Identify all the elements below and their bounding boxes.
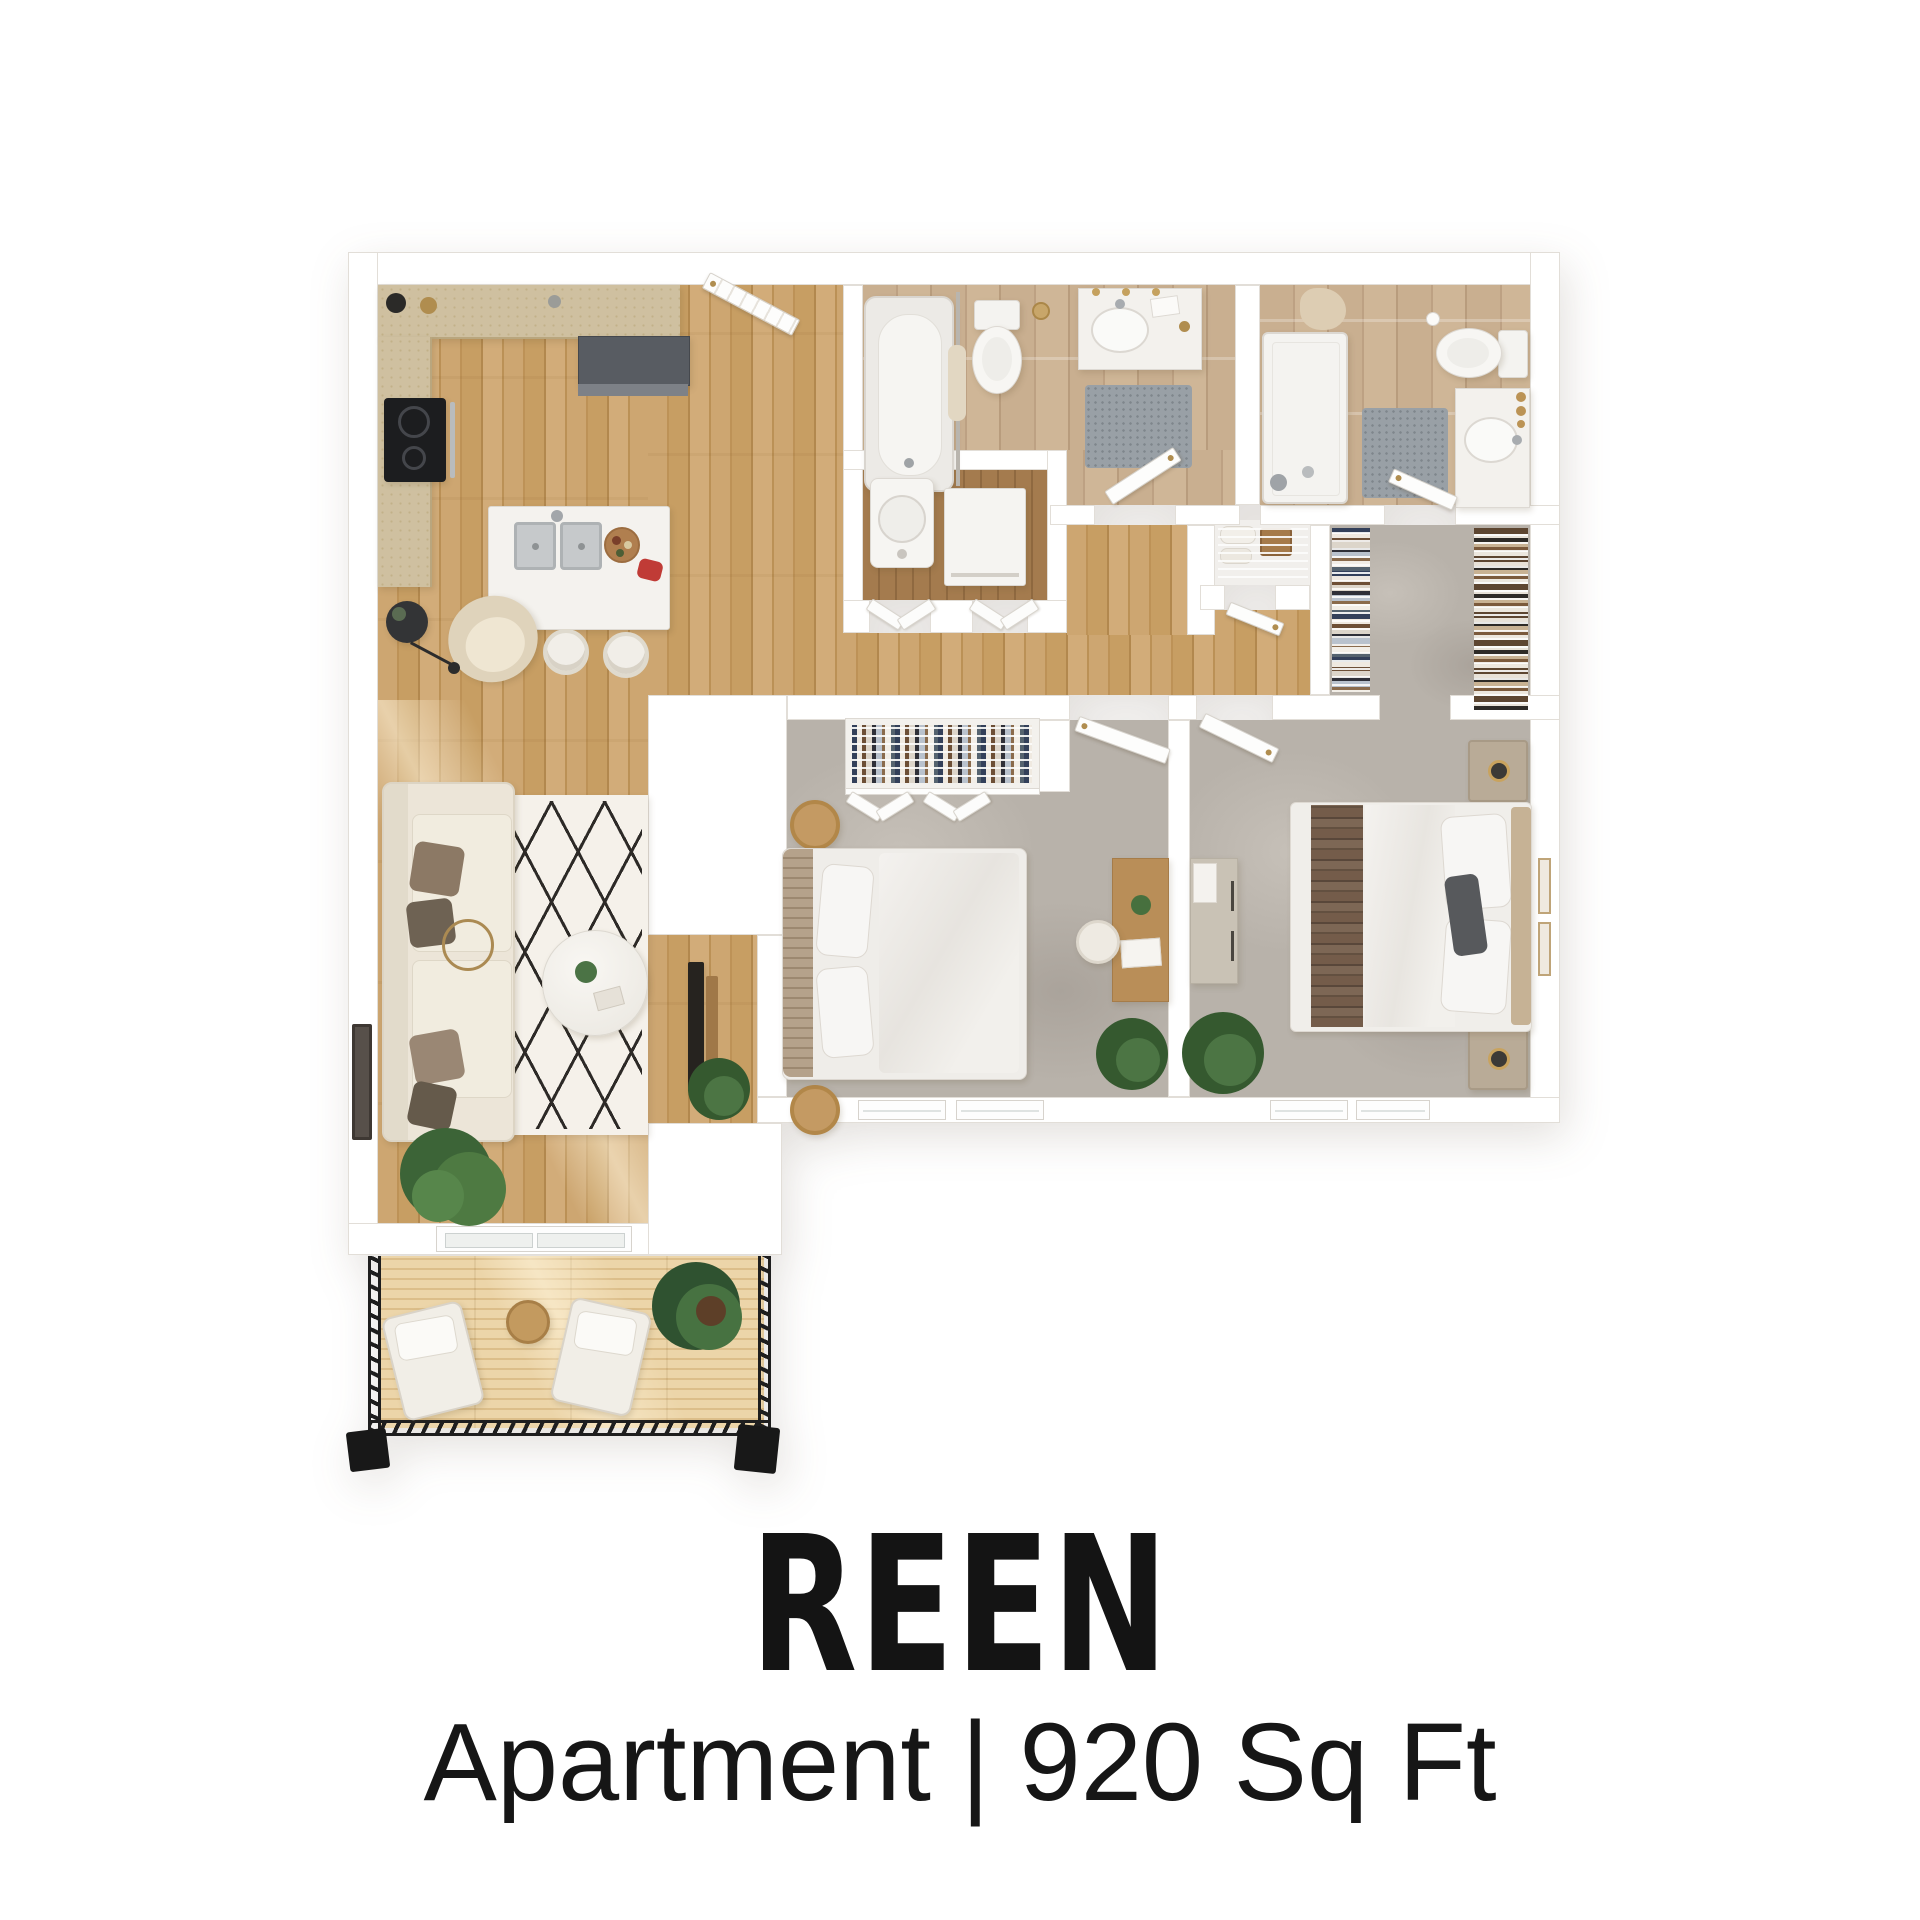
wall-right <box>1530 252 1560 1123</box>
walkin-rack-left-wire <box>1332 528 1370 692</box>
bathtub <box>864 296 954 492</box>
wall-bedrooms-top-a <box>787 695 1070 720</box>
island-sink-left <box>514 522 556 570</box>
wall-walkin-left <box>1310 525 1330 695</box>
master-plant-2 <box>1204 1034 1256 1086</box>
laundry-bifold-1a <box>866 598 906 630</box>
bed-1-pillow-2 <box>815 965 875 1059</box>
range-hood <box>578 336 690 386</box>
bedroom1-window-1 <box>858 1100 946 1120</box>
subtitle-separator: | <box>961 1691 990 1835</box>
wall-linen-left <box>1187 525 1215 635</box>
plan-type: Apartment <box>424 1701 931 1824</box>
wall-linen-bottom-b <box>1275 585 1310 610</box>
sofa-pillow-1 <box>408 840 465 897</box>
bar-stool-3 <box>603 632 649 678</box>
vanity-light-3 <box>1152 288 1160 296</box>
sofa-back <box>384 784 408 1140</box>
desk-plant <box>1131 895 1151 915</box>
bed1-nightstand-bottom <box>790 1085 840 1135</box>
master-lamp-bottom <box>1488 1048 1510 1070</box>
nook-plant-2 <box>704 1076 744 1116</box>
gold-bin <box>1032 302 1050 320</box>
coffee-table <box>542 930 648 1036</box>
vanity-1 <box>1078 288 1202 370</box>
toilet-1-seat <box>982 337 1012 381</box>
wall-step-block <box>648 1123 782 1255</box>
table-plant <box>575 961 597 983</box>
plan-subtitle: Apartment|920 Sq Ft <box>0 1694 1920 1832</box>
walkin-rack-right-wire <box>1474 528 1528 710</box>
balcony-railing-front <box>368 1420 771 1436</box>
bathtub-faucet <box>904 458 914 468</box>
plan-title: REEN <box>250 1512 1671 1700</box>
side-table-plant <box>392 607 406 621</box>
wall-linen-bottom-a <box>1200 585 1225 610</box>
soap-dish <box>1179 321 1190 332</box>
washer-lid <box>878 495 926 543</box>
dresser-handle-2 <box>1231 931 1234 961</box>
dresser-tray <box>1193 863 1217 903</box>
wall-bath-divider <box>1235 285 1260 505</box>
wall-bath1-bottom-a <box>1050 505 1095 525</box>
wall-laundry-bottom-b <box>930 600 973 633</box>
dryer-cabinet <box>944 488 1026 586</box>
gold-jar-1 <box>1516 392 1526 402</box>
burner-1 <box>398 406 430 438</box>
master-lamp-top <box>1488 760 1510 782</box>
bedroom1-closet <box>845 718 1040 792</box>
master-bed-throw <box>1311 805 1363 1027</box>
sliding-panel-2 <box>537 1233 625 1248</box>
wall-art <box>352 1024 372 1140</box>
walkin-rack-left <box>1332 528 1370 692</box>
gold-jar-2 <box>1516 406 1526 416</box>
master-window-2 <box>1356 1100 1430 1120</box>
burner-2 <box>402 446 426 470</box>
master-art-2 <box>1538 922 1551 976</box>
food-item-1 <box>612 536 621 545</box>
balcony-railing-left <box>368 1256 381 1432</box>
toilet-paper-holder <box>1426 312 1440 326</box>
lounge-chair-2-pillow <box>573 1310 638 1357</box>
shower-drain <box>1302 466 1314 478</box>
balcony-side-table <box>506 1300 550 1344</box>
master-nightstand-bottom <box>1468 1028 1528 1090</box>
bed1-nightstand-top <box>790 800 840 850</box>
living-tree-3 <box>412 1170 464 1222</box>
laundry-bifold-2a <box>969 598 1009 630</box>
bath1-towel <box>948 345 966 421</box>
island-faucet <box>551 510 563 522</box>
balcony-plant-core <box>696 1296 726 1326</box>
balcony-sliding-door <box>436 1226 632 1252</box>
bed-1 <box>782 848 1027 1080</box>
toilet-2-bowl <box>1436 328 1502 378</box>
wall-bath2-bottom-b <box>1455 505 1560 525</box>
desk-pad <box>1120 938 1162 969</box>
sink-drain-left <box>532 543 539 550</box>
wall-clock <box>442 919 494 971</box>
bar-stool-2 <box>543 629 589 675</box>
master-headboard <box>1511 807 1531 1025</box>
gold-jar-3 <box>1517 420 1525 428</box>
toilet-2-seat <box>1447 338 1489 368</box>
shower-head <box>1270 474 1287 491</box>
master-dresser <box>1190 858 1238 984</box>
bedroom1-closet-wire <box>852 725 1032 783</box>
wall-living-bedroom1-block <box>648 695 787 935</box>
hallway-floor-upper <box>1067 525 1187 635</box>
shower <box>1262 332 1348 504</box>
bedroom1-window-2 <box>956 1100 1044 1120</box>
washer-knob <box>897 549 907 559</box>
bed-1-headboard <box>783 849 813 1077</box>
island-sink-right <box>560 522 602 570</box>
master-window-1 <box>1270 1100 1348 1120</box>
balcony-post-left <box>346 1428 391 1473</box>
tissue-box <box>1150 295 1180 318</box>
sink-2-faucet <box>1512 435 1522 445</box>
hallway-floor <box>648 633 1310 695</box>
table-book <box>593 986 625 1012</box>
wall-top <box>348 252 1560 285</box>
bathtub-basin <box>878 314 942 476</box>
lounge-chair-1-pillow <box>393 1314 459 1362</box>
desk-chair <box>1076 920 1120 964</box>
toilet-2-tank <box>1498 330 1528 378</box>
sliding-panel-1 <box>445 1233 533 1248</box>
cutting-board <box>604 527 640 563</box>
vanity-light-2 <box>1122 288 1130 296</box>
cooktop <box>384 398 446 482</box>
food-item-2 <box>624 541 632 549</box>
bed-1-pillow-1 <box>815 863 875 959</box>
counter-kettle <box>420 297 437 314</box>
bedroom1-desk <box>1112 858 1169 1002</box>
sink-1 <box>1091 307 1149 353</box>
master-bed <box>1290 802 1532 1032</box>
bedroom1-plant-2 <box>1116 1038 1160 1082</box>
sink-drain-right <box>578 543 585 550</box>
counter-bowl <box>386 293 406 313</box>
wall-laundry-bottom-a <box>843 600 870 633</box>
wall-bedrooms-top-c <box>1272 695 1380 720</box>
bed-1-duvet-fold <box>879 853 1019 1073</box>
accent-chair-seat <box>457 608 533 681</box>
counter-jar <box>548 295 561 308</box>
floor-lamp-head <box>448 662 460 674</box>
vanity-light-1 <box>1092 288 1100 296</box>
toilet-1-bowl <box>972 326 1022 394</box>
wall-closet-pier <box>1037 720 1070 792</box>
master-nightstand-top <box>1468 740 1528 802</box>
balcony-railing-right <box>758 1256 771 1428</box>
washer <box>870 478 934 568</box>
walkin-rack-right <box>1474 528 1528 710</box>
sink-1-faucet <box>1115 299 1125 309</box>
shower-curtain <box>1300 288 1346 330</box>
linen-wire-overlay <box>1218 522 1308 584</box>
bedroom1-closet-rail <box>845 788 1040 795</box>
sink-2 <box>1464 417 1518 463</box>
oven-handle <box>450 402 455 478</box>
balcony-post-right <box>734 1424 781 1474</box>
plan-area: 920 Sq Ft <box>1020 1701 1497 1824</box>
sofa-pillow-4 <box>406 1080 458 1132</box>
range-hood-vent <box>578 384 688 396</box>
dresser-handle-1 <box>1231 881 1234 911</box>
wall-bedrooms-top-b <box>1168 695 1197 720</box>
food-item-3 <box>616 549 624 557</box>
linen-shelf <box>1218 522 1308 584</box>
master-art-1 <box>1538 858 1551 914</box>
cabinet-handle <box>951 573 1019 577</box>
side-table <box>386 601 428 643</box>
sofa-pillow-3 <box>408 1028 466 1086</box>
